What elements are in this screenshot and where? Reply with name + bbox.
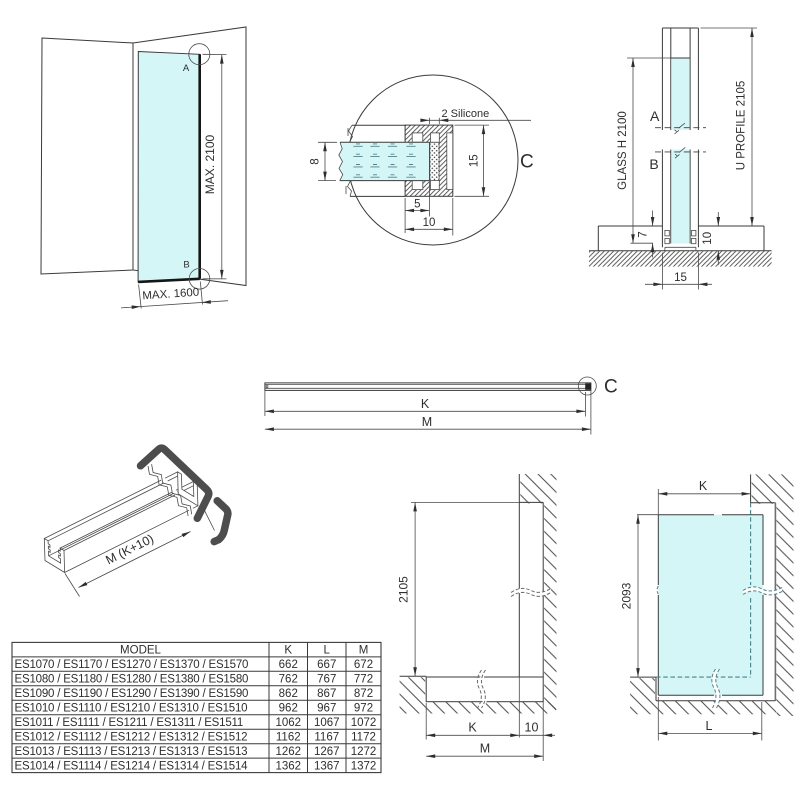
- svg-text:C: C: [520, 152, 534, 173]
- svg-text:1262: 1262: [275, 746, 301, 758]
- svg-text:767: 767: [317, 674, 336, 686]
- svg-text:862: 862: [279, 688, 298, 700]
- svg-text:ES1090 / ES1190 / ES1290 / ES1: ES1090 / ES1190 / ES1290 / ES1390 / ES15…: [15, 688, 249, 700]
- svg-text:L: L: [324, 645, 331, 657]
- svg-text:1162: 1162: [276, 731, 301, 743]
- svg-text:662: 662: [279, 659, 298, 671]
- svg-text:M: M: [359, 645, 369, 657]
- svg-text:10: 10: [702, 232, 714, 245]
- svg-text:15: 15: [469, 154, 481, 167]
- svg-text:672: 672: [354, 659, 373, 671]
- svg-text:1272: 1272: [351, 746, 377, 758]
- svg-text:872: 872: [354, 688, 373, 700]
- svg-text:U PROFILE 2105: U PROFILE 2105: [736, 81, 748, 170]
- svg-text:K: K: [421, 397, 430, 411]
- svg-text:2 Silicone: 2 Silicone: [442, 108, 490, 120]
- svg-text:1062: 1062: [275, 717, 301, 729]
- svg-text:967: 967: [317, 703, 336, 715]
- svg-text:1067: 1067: [314, 717, 340, 729]
- svg-text:1167: 1167: [314, 731, 339, 743]
- svg-text:1367: 1367: [314, 760, 340, 772]
- svg-text:1372: 1372: [351, 760, 377, 772]
- svg-text:ES1013 / ES1113 / ES1213 / ES1: ES1013 / ES1113 / ES1213 / ES1313 / ES15…: [15, 746, 248, 758]
- svg-text:K: K: [468, 721, 477, 735]
- svg-text:15: 15: [674, 272, 687, 284]
- svg-text:2105: 2105: [397, 576, 411, 603]
- svg-text:C: C: [604, 377, 618, 398]
- svg-text:A: A: [650, 108, 660, 124]
- svg-text:1362: 1362: [275, 760, 301, 772]
- svg-text:MODEL: MODEL: [120, 645, 162, 657]
- svg-text:ES1012 / ES1112 / ES1212 / ES1: ES1012 / ES1112 / ES1212 / ES1312 / ES15…: [15, 731, 248, 743]
- svg-text:GLASS H 2100: GLASS H 2100: [617, 111, 629, 190]
- svg-text:ES1010 / ES1110 / ES1210 / ES1: ES1010 / ES1110 / ES1210 / ES1310 / ES15…: [15, 703, 248, 715]
- svg-text:667: 667: [317, 659, 336, 671]
- svg-text:M: M: [422, 415, 432, 429]
- svg-text:L: L: [706, 719, 713, 733]
- svg-text:1267: 1267: [314, 746, 340, 758]
- svg-text:2093: 2093: [620, 582, 634, 609]
- svg-text:10: 10: [525, 721, 539, 735]
- svg-text:B: B: [649, 156, 658, 172]
- svg-text:5: 5: [414, 199, 420, 211]
- svg-text:972: 972: [354, 703, 373, 715]
- svg-text:1072: 1072: [351, 717, 377, 729]
- svg-text:ES1011 / ES1111 / ES1211 / ES1: ES1011 / ES1111 / ES1211 / ES1311 / ES15…: [15, 717, 244, 729]
- svg-text:ES1014 / ES1114 / ES1214 / ES1: ES1014 / ES1114 / ES1214 / ES1314 / ES15…: [15, 760, 249, 772]
- svg-text:B: B: [183, 260, 189, 271]
- svg-text:10: 10: [423, 217, 436, 229]
- svg-text:8: 8: [310, 158, 322, 164]
- svg-text:762: 762: [279, 674, 298, 686]
- svg-text:772: 772: [354, 674, 373, 686]
- svg-text:K: K: [284, 645, 292, 657]
- svg-text:1172: 1172: [351, 731, 376, 743]
- svg-text:ES1070 / ES1170 / ES1270 / ES1: ES1070 / ES1170 / ES1270 / ES1370 / ES15…: [15, 659, 249, 671]
- svg-text:867: 867: [317, 688, 336, 700]
- svg-text:MAX. 2100: MAX. 2100: [203, 134, 217, 194]
- svg-text:ES1080 / ES1180 / ES1280 / ES1: ES1080 / ES1180 / ES1280 / ES1380 / ES15…: [15, 674, 249, 686]
- svg-text:7: 7: [638, 231, 650, 237]
- svg-text:962: 962: [279, 703, 298, 715]
- svg-text:A: A: [183, 63, 190, 74]
- svg-text:M: M: [480, 742, 490, 756]
- svg-text:K: K: [699, 479, 708, 493]
